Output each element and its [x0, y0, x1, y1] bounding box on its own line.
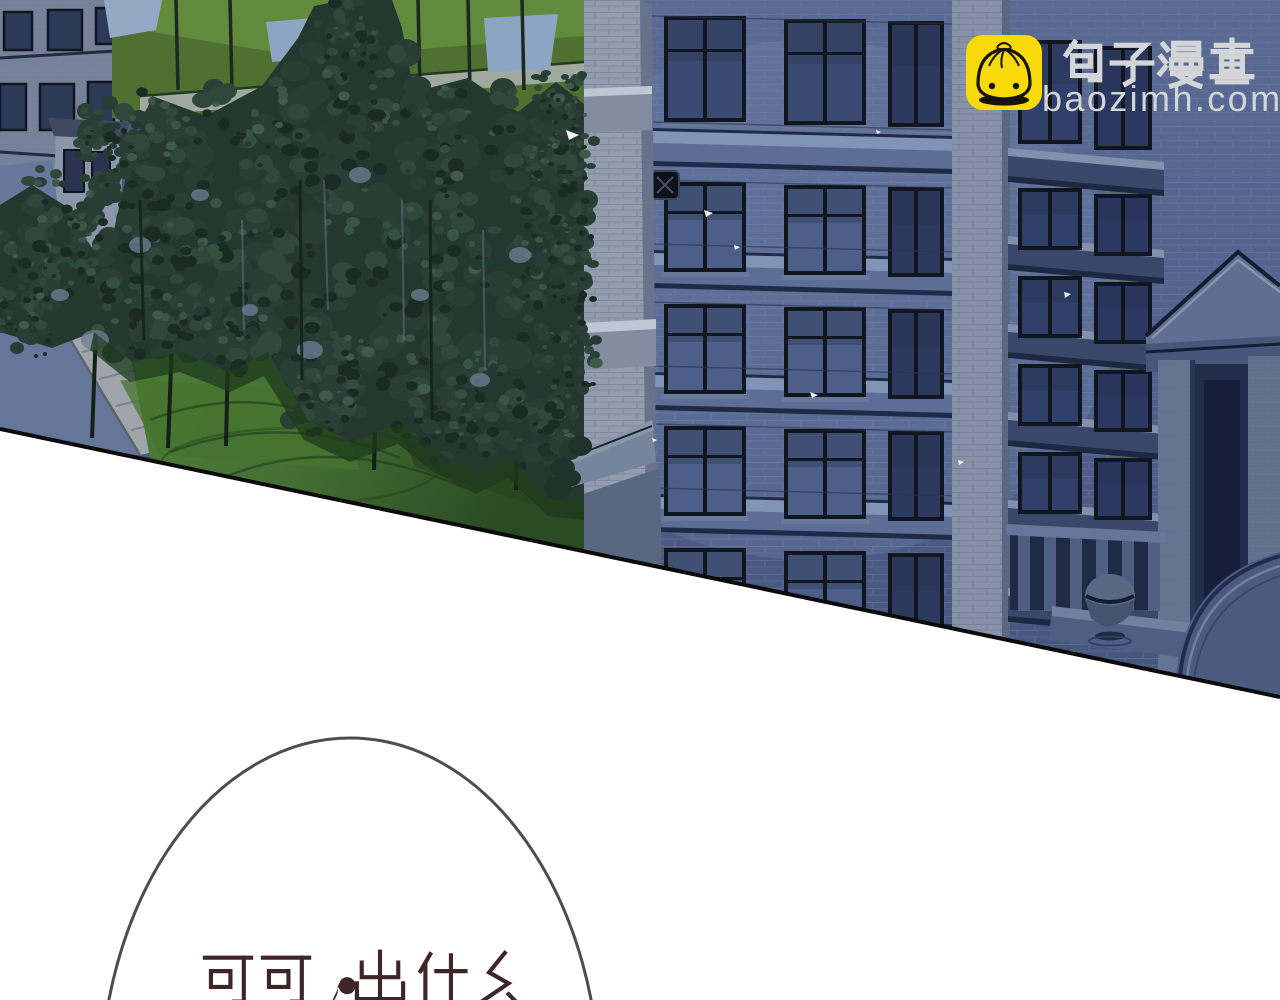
svg-text:baozimh.com: baozimh.com	[1042, 78, 1280, 119]
